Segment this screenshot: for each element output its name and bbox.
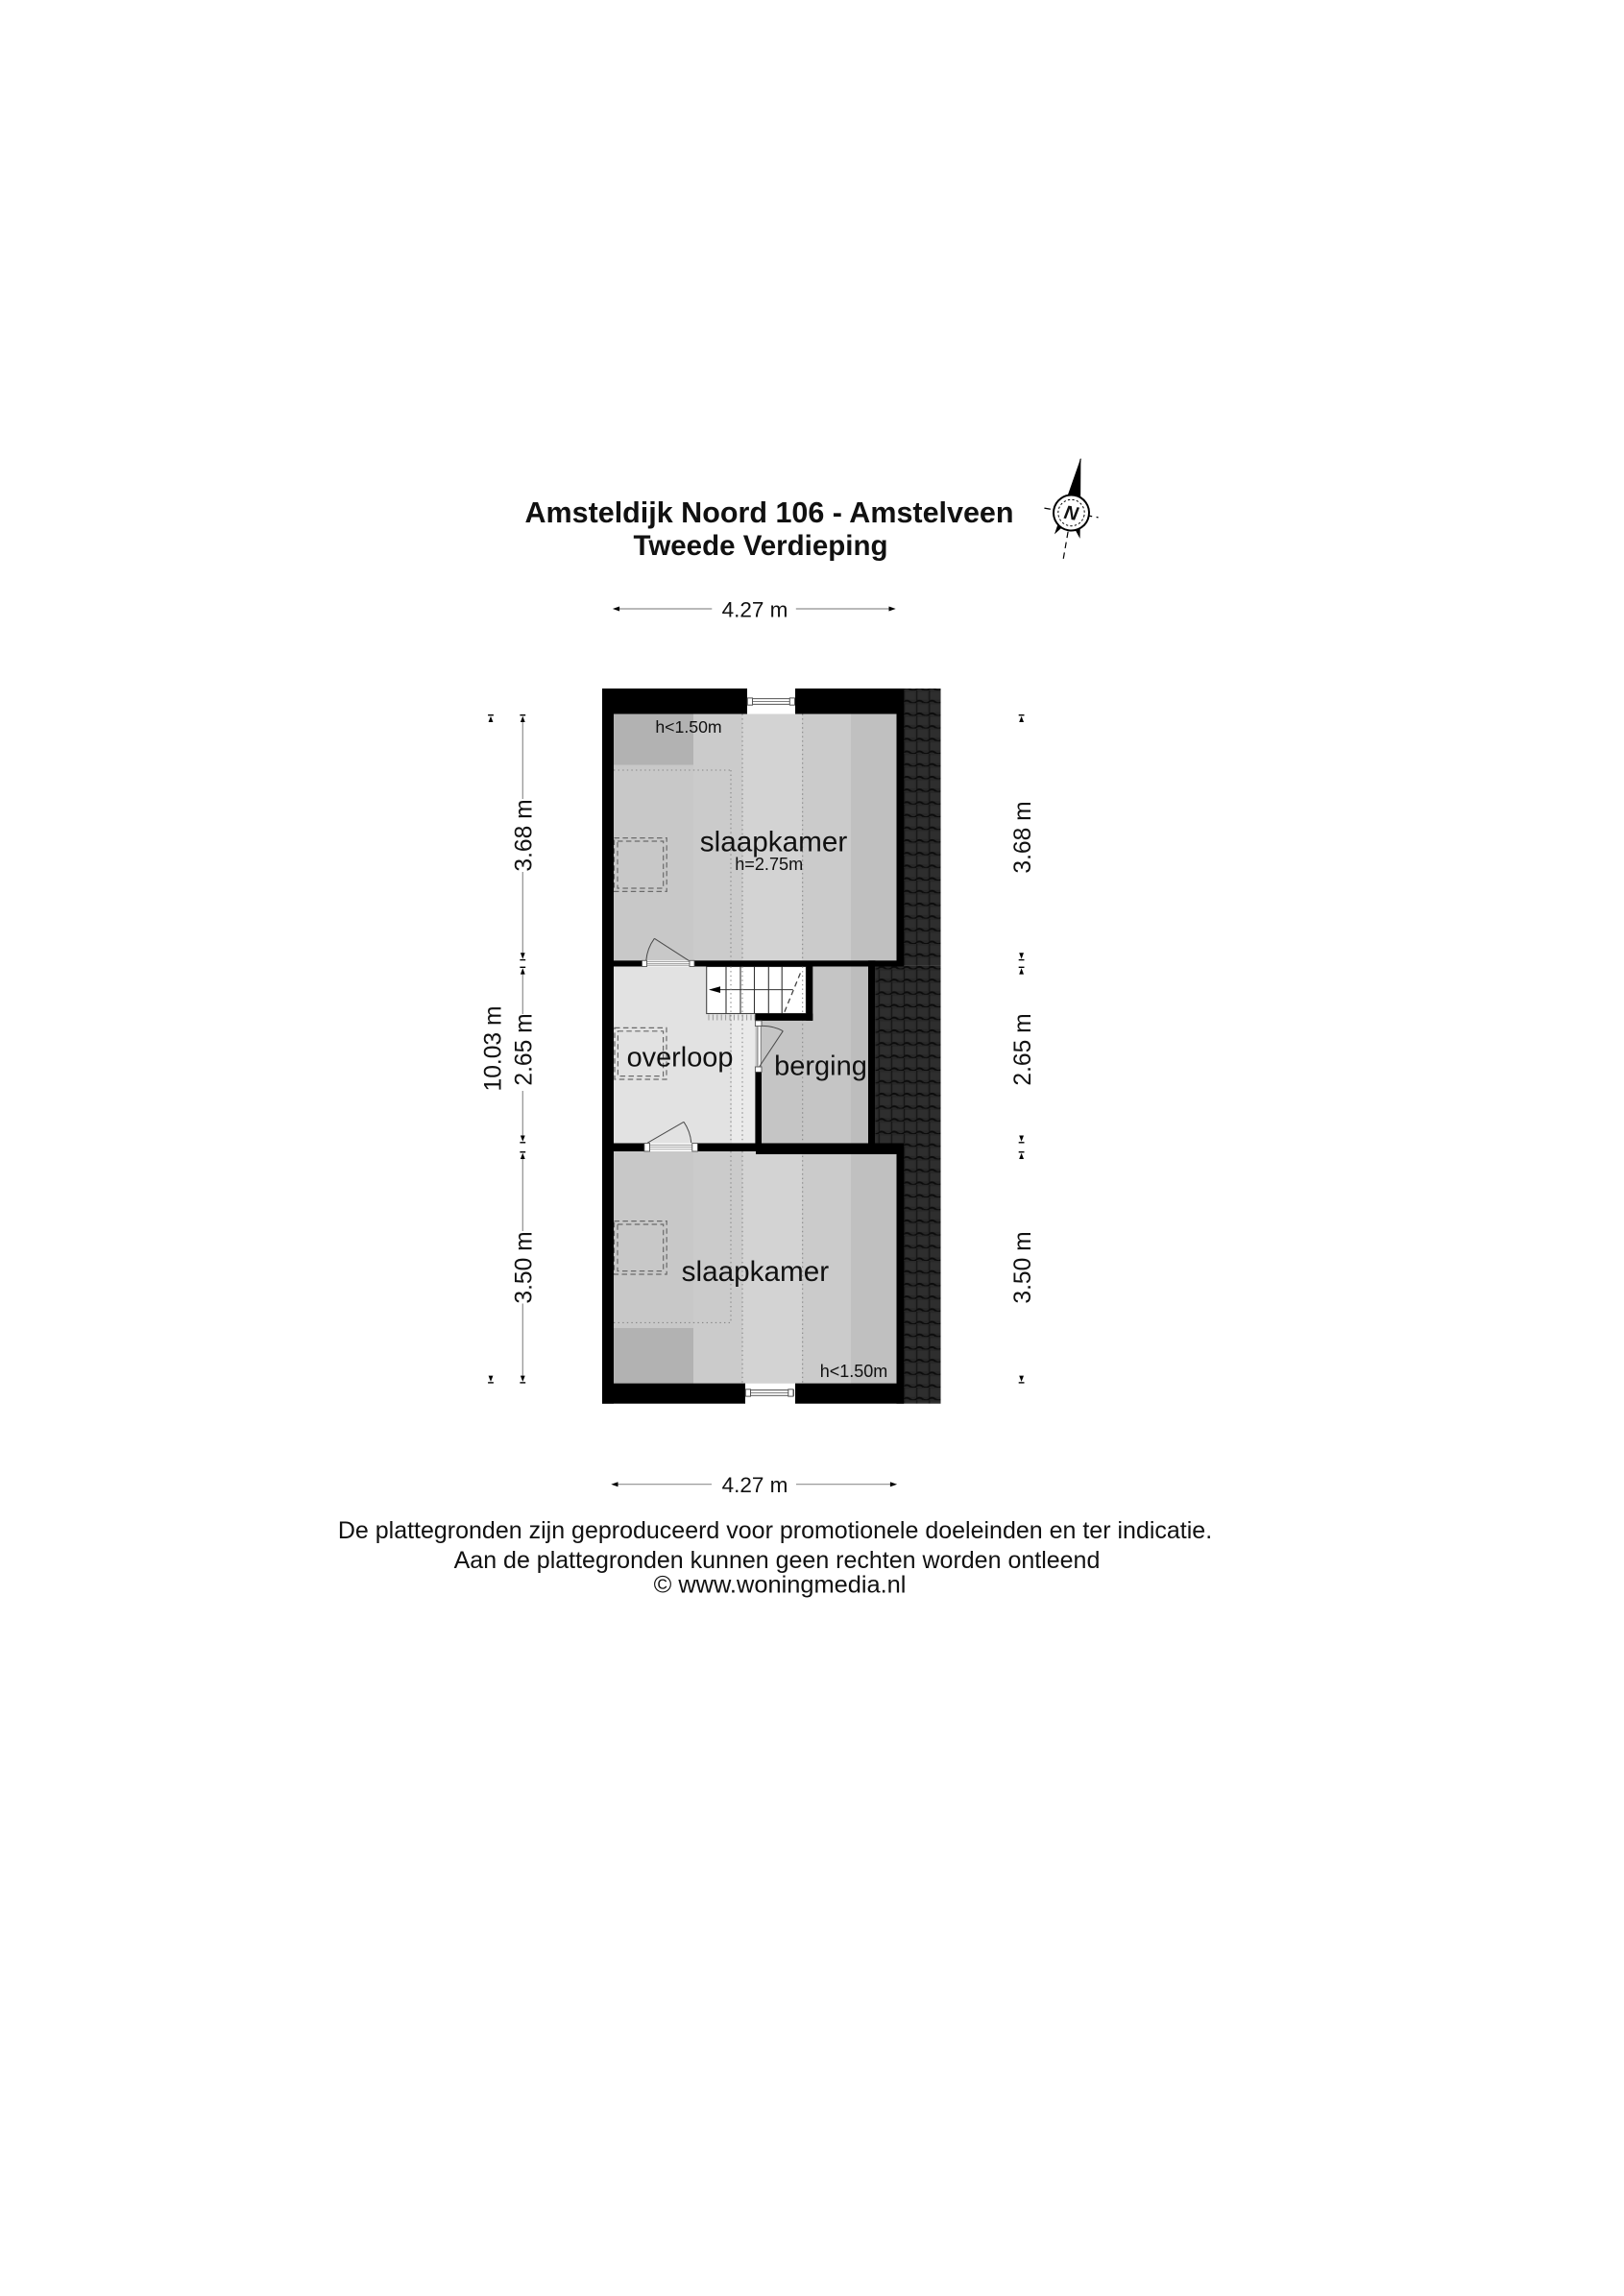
svg-text:2.65 m: 2.65 m bbox=[1010, 1013, 1036, 1085]
svg-text:slaapkamer: slaapkamer bbox=[700, 826, 848, 858]
svg-text:h<1.50m: h<1.50m bbox=[655, 717, 721, 737]
svg-text:h=2.75m: h=2.75m bbox=[735, 855, 803, 874]
svg-text:3.68 m: 3.68 m bbox=[1010, 801, 1036, 873]
svg-text:Tweede Verdieping: Tweede Verdieping bbox=[633, 530, 887, 562]
svg-text:berging: berging bbox=[774, 1051, 867, 1081]
svg-text:© www.woningmedia.nl: © www.woningmedia.nl bbox=[654, 1571, 907, 1598]
svg-text:3.68 m: 3.68 m bbox=[512, 799, 538, 871]
svg-text:3.50 m: 3.50 m bbox=[512, 1231, 538, 1303]
svg-text:10.03 m: 10.03 m bbox=[481, 1006, 507, 1092]
svg-text:3.50 m: 3.50 m bbox=[1010, 1231, 1036, 1303]
svg-text:4.27 m: 4.27 m bbox=[722, 1473, 788, 1497]
svg-text:De plattegronden zijn geproduc: De plattegronden zijn geproduceerd voor … bbox=[338, 1517, 1212, 1544]
svg-text:2.65 m: 2.65 m bbox=[512, 1013, 538, 1085]
svg-text:h<1.50m: h<1.50m bbox=[820, 1362, 888, 1381]
svg-text:Amsteldijk Noord 106 - Amstelv: Amsteldijk Noord 106 - Amstelveen bbox=[524, 496, 1013, 529]
svg-text:slaapkamer: slaapkamer bbox=[682, 1256, 830, 1288]
svg-text:overloop: overloop bbox=[627, 1043, 734, 1074]
svg-text:Aan de plattegronden kunnen ge: Aan de plattegronden kunnen geen rechten… bbox=[454, 1547, 1101, 1574]
svg-text:4.27 m: 4.27 m bbox=[722, 598, 788, 622]
